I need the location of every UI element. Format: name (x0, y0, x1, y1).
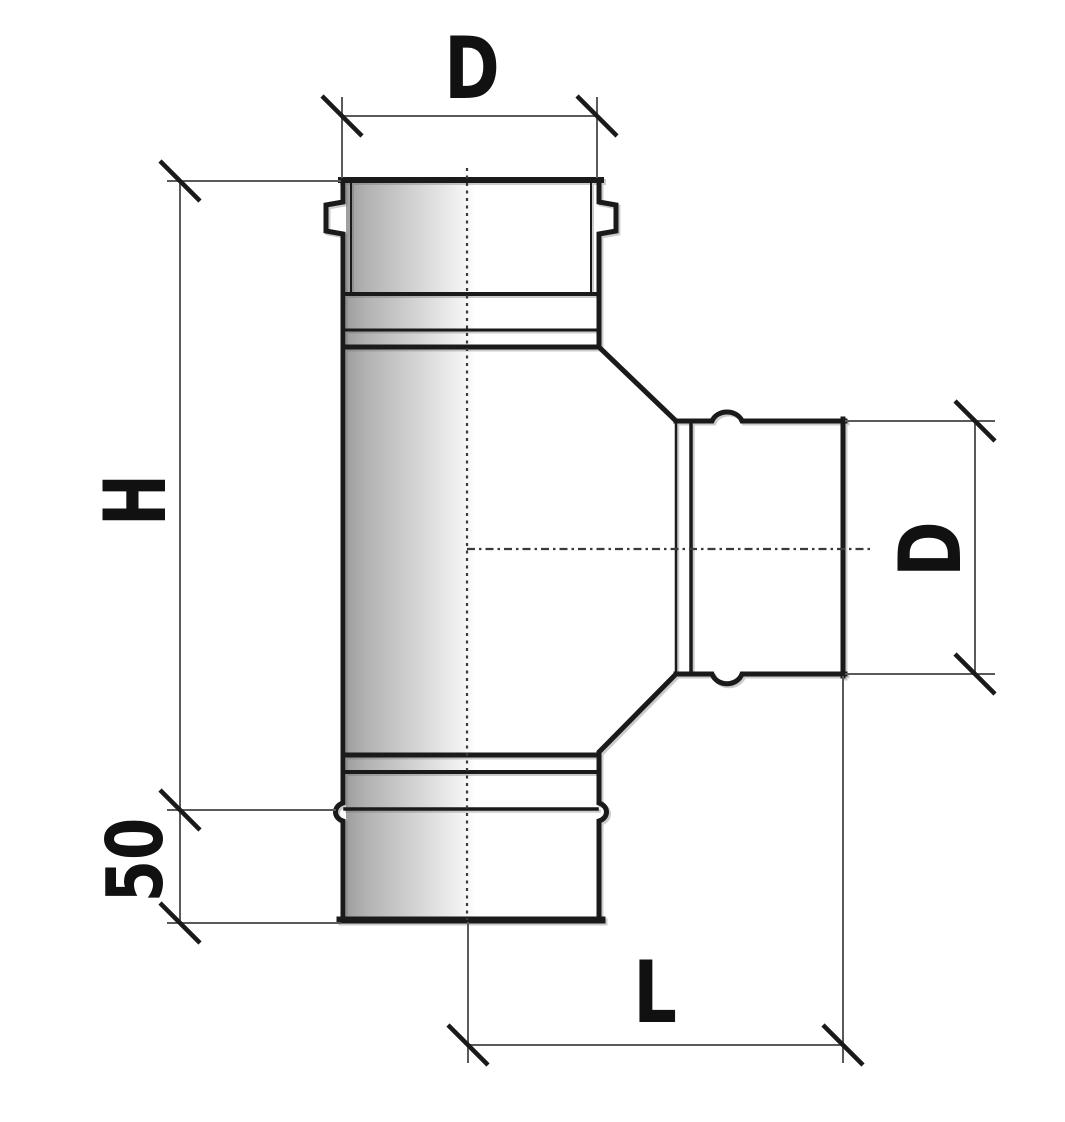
drawing-canvas: D H 50 D (0, 0, 1065, 1122)
branch-bottom-edge (676, 674, 845, 684)
tee-fitting-drawing: D H 50 D (0, 0, 1065, 1122)
dim-branch-diameter: D (845, 401, 995, 694)
label-branch-length: L (633, 944, 677, 1043)
label-branch-diameter: D (881, 521, 981, 577)
label-socket-depth: 50 (91, 818, 181, 903)
dim-top-diameter: D (322, 19, 617, 178)
pipe-right-edge-upper (599, 180, 676, 421)
dim-height-and-socket: H 50 (85, 161, 341, 943)
pipe-right-edge-lower (599, 674, 676, 920)
label-body-height: H (85, 474, 186, 526)
label-top-diameter: D (444, 19, 500, 119)
branch-top-edge (676, 412, 845, 421)
